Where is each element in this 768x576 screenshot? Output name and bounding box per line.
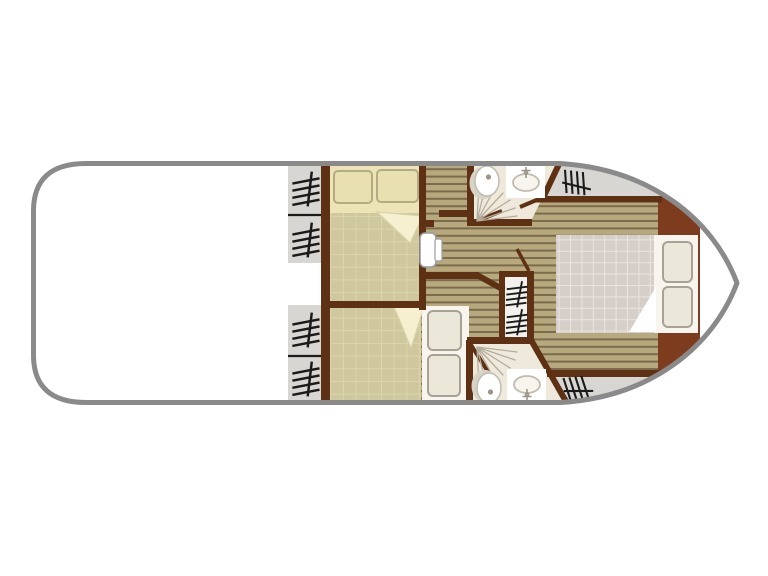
wall-main-transverse <box>321 163 330 406</box>
door-panel <box>420 233 436 267</box>
wall-stairs-east <box>527 271 534 343</box>
wall-port-doorframe-stub <box>419 220 434 227</box>
wall-master-south <box>547 370 664 377</box>
port-sink-icon <box>506 164 545 198</box>
wall-stairs-north <box>499 271 534 277</box>
master-bed-pillow-port <box>663 242 692 282</box>
wall-corridor-south <box>424 272 479 279</box>
wall-port-cabin-door-stub <box>439 210 467 217</box>
starboard-bed-pillow-top <box>428 311 461 350</box>
port-bed-pillow-right <box>377 170 418 202</box>
starboard-bed-pillow-bottom <box>428 355 460 396</box>
port-bed-pillow-left <box>334 171 372 203</box>
wall-stairs-west <box>499 271 505 343</box>
door-edge <box>435 239 442 261</box>
starboard-sink-icon <box>507 369 546 403</box>
wall-starboard-bathroom-north <box>467 337 532 344</box>
floor-plan-svg <box>0 0 768 576</box>
master-bed-pillow-starboard <box>663 287 692 327</box>
floor-plan-canvas <box>0 0 768 576</box>
wall-master-north <box>536 196 662 203</box>
wall-cabin-divider <box>321 301 422 308</box>
